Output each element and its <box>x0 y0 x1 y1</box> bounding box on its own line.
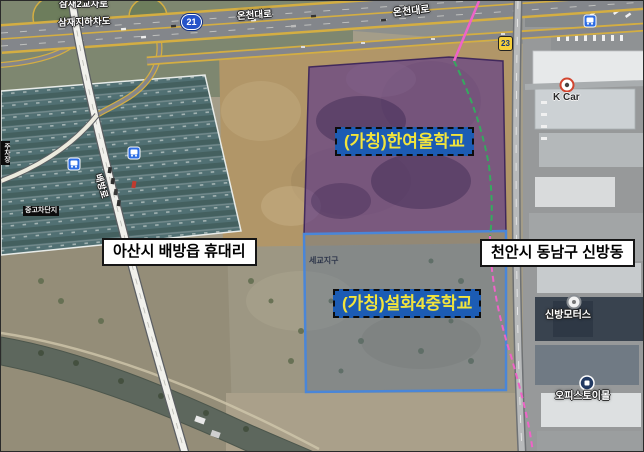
junction-label: 삼재2교차로 <box>59 0 108 10</box>
bus-stop-icon[interactable] <box>584 15 596 27</box>
underpass-label: 삼재지하차도 <box>58 17 111 28</box>
admin-label-asan: 아산시 배방읍 휴대리 <box>102 238 257 266</box>
satellite-canvas[interactable] <box>1 1 644 452</box>
road-name-label: 온천대로 <box>237 10 273 22</box>
poi-label-office-mall[interactable]: 오피스토이몰 <box>555 392 610 402</box>
site-label-seolhwa4: (가칭)설화4중학교 <box>333 289 481 318</box>
poi-marker-kcar[interactable] <box>561 79 574 92</box>
site-label-hanyeoul: (가칭)한여울학교 <box>335 127 474 156</box>
bus-stop-icon[interactable] <box>128 147 140 159</box>
poi-chip-label: 중고차단지 <box>23 206 59 216</box>
poi-chip-label: 주차장 <box>1 141 10 165</box>
admin-label-cheonan: 천안시 동남구 신방동 <box>480 239 635 267</box>
ground-text-label: 세교지구 <box>309 255 338 266</box>
map-viewport[interactable]: 삼재2교차로 삼재지하차도 온천대로 온천대로 배방로 K Car 신방모터스 … <box>0 0 644 452</box>
poi-marker-sinbang-motors[interactable] <box>568 296 581 309</box>
poi-label-kcar[interactable]: K Car <box>553 93 580 103</box>
route-number: 23 <box>501 40 510 48</box>
bus-stop-icon[interactable] <box>68 158 80 170</box>
route-number: 21 <box>186 18 196 27</box>
poi-label-sinbang-motors[interactable]: 신방모터스 <box>545 311 591 321</box>
route-shield-21: 21 <box>181 14 202 30</box>
route-shield-local: 23 <box>498 36 513 51</box>
poi-marker-office-mall[interactable] <box>580 376 594 390</box>
